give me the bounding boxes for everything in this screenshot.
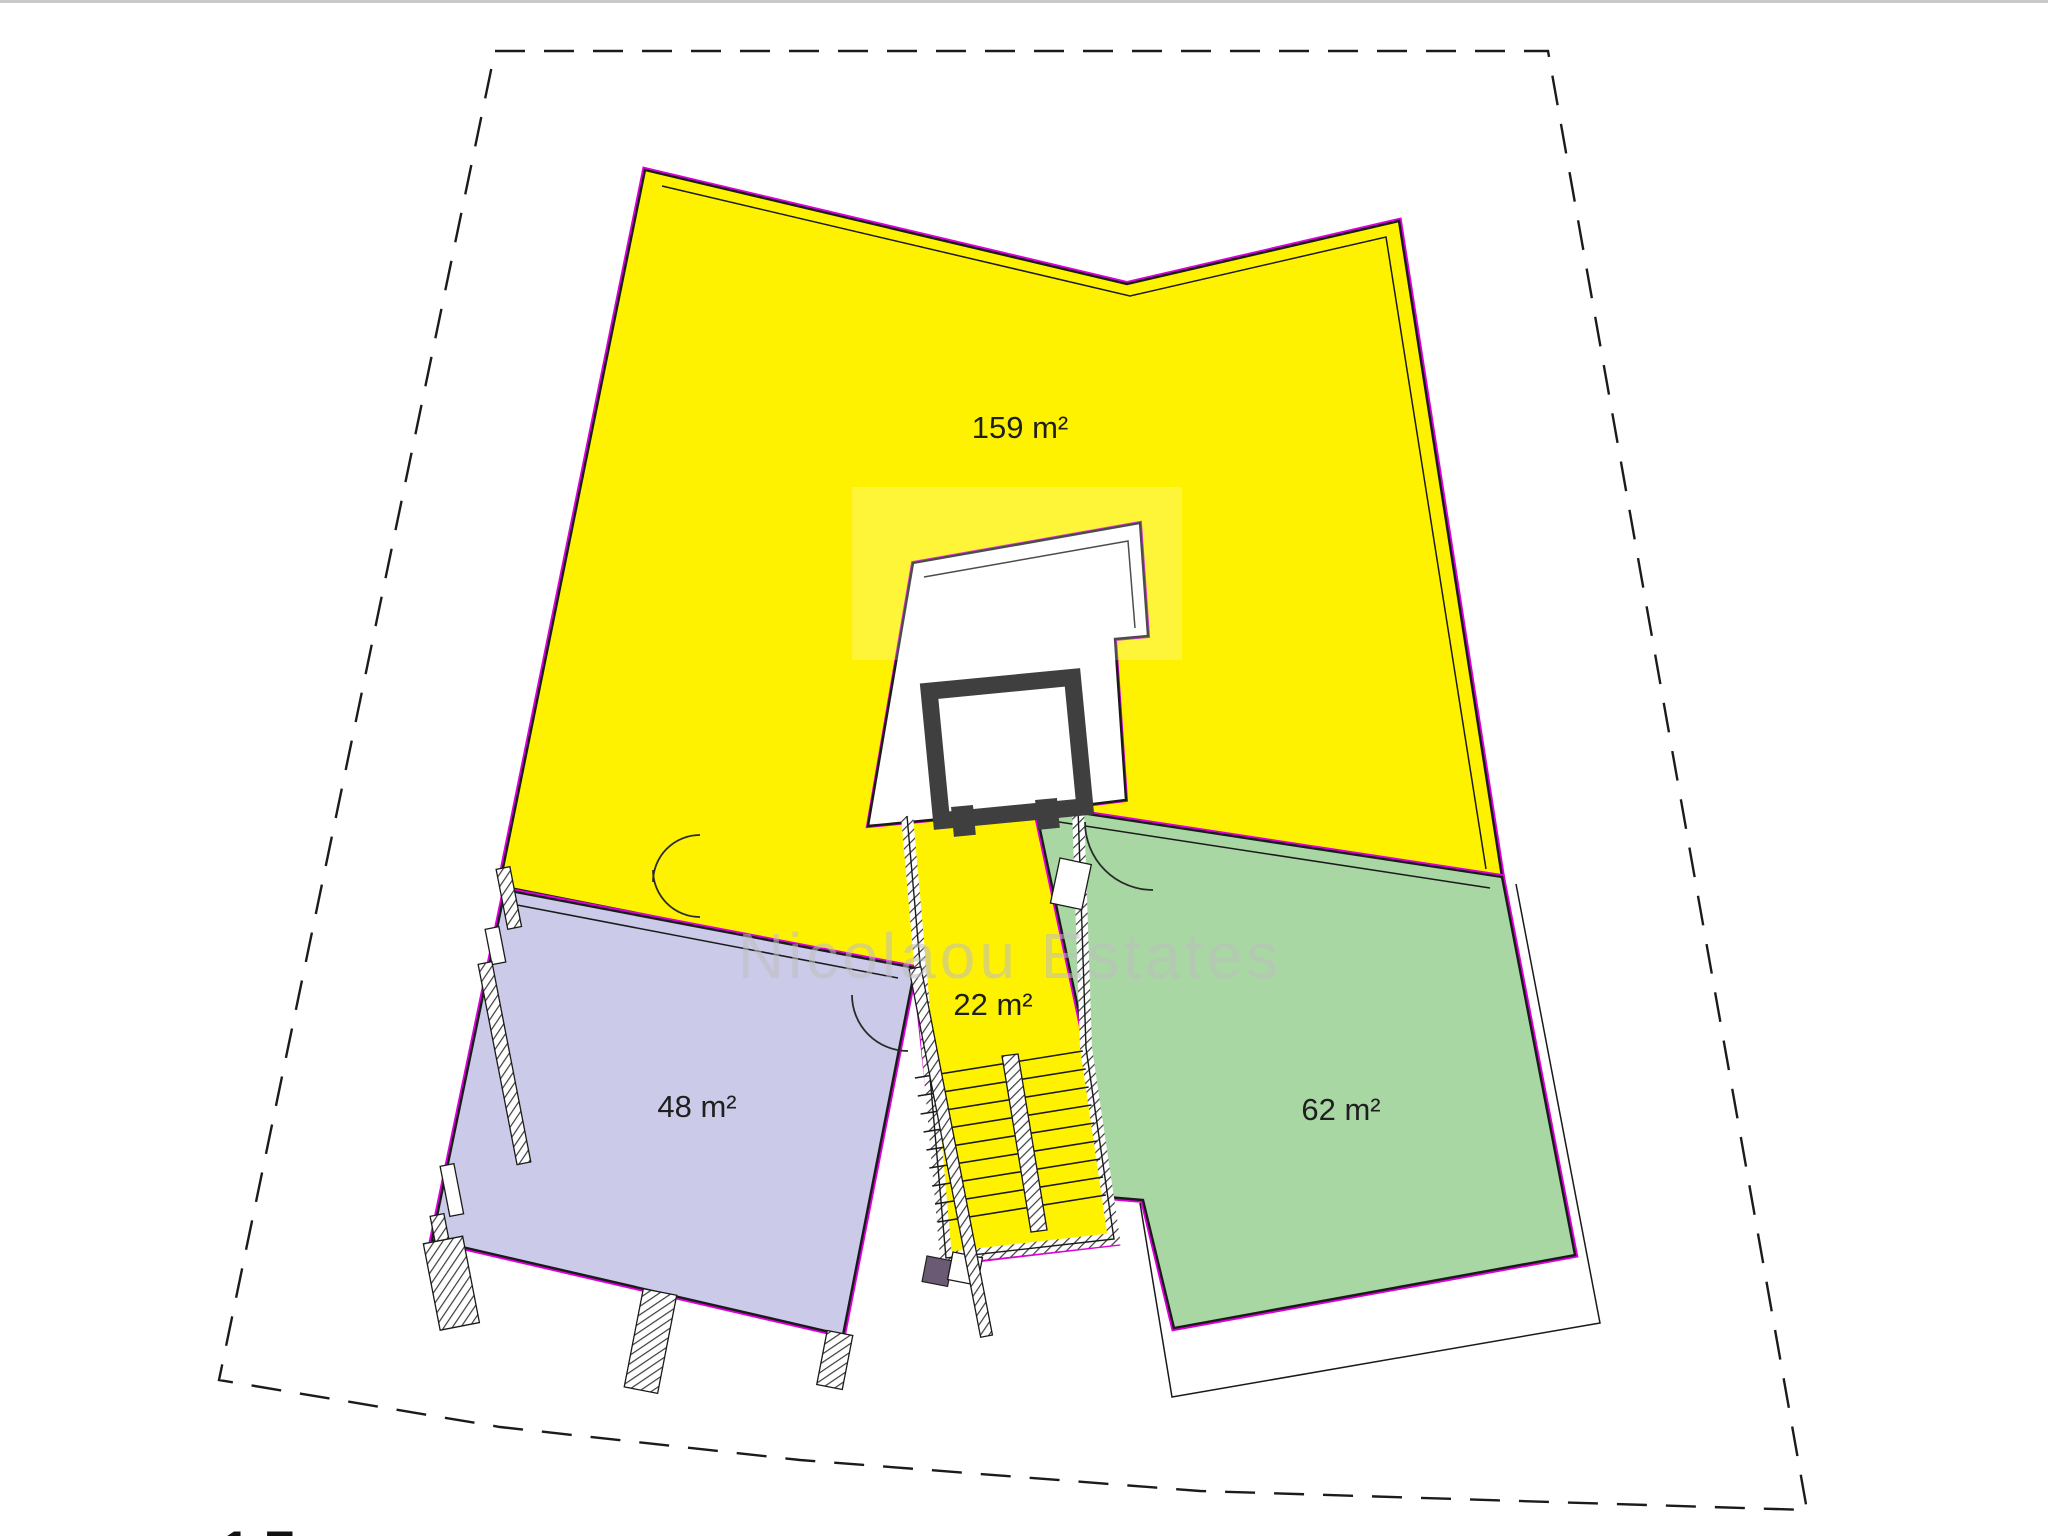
label-unit-right: 62 m² bbox=[1301, 1092, 1380, 1127]
shaft-stub-left bbox=[951, 805, 976, 837]
wall-stub-bottom-right bbox=[817, 1331, 853, 1390]
window-top-border bbox=[0, 0, 2048, 3]
elevator-shaft bbox=[929, 677, 1085, 820]
label-stairwell: 22 m² bbox=[953, 987, 1032, 1022]
wall-stub-bottom-middle bbox=[624, 1289, 676, 1394]
unit-right-fill bbox=[1035, 806, 1575, 1328]
bottom-clipped-text: 1 F bbox=[222, 1521, 294, 1536]
watermark-logo-box bbox=[852, 487, 1182, 660]
shaft-stub-right bbox=[1035, 798, 1060, 830]
label-unit-main: 159 m² bbox=[972, 410, 1068, 445]
floor-plan-canvas: Nicolaou Estates 159 m² 22 m² 48 m² 62 m… bbox=[0, 0, 2048, 1536]
watermark-text: Nicolaou Estates bbox=[738, 920, 1282, 992]
unit-right-62 bbox=[1035, 806, 1575, 1328]
stair-bottom-dark-block bbox=[922, 1256, 952, 1286]
elevator-shaft-walls bbox=[929, 677, 1085, 820]
label-unit-left: 48 m² bbox=[657, 1089, 736, 1124]
